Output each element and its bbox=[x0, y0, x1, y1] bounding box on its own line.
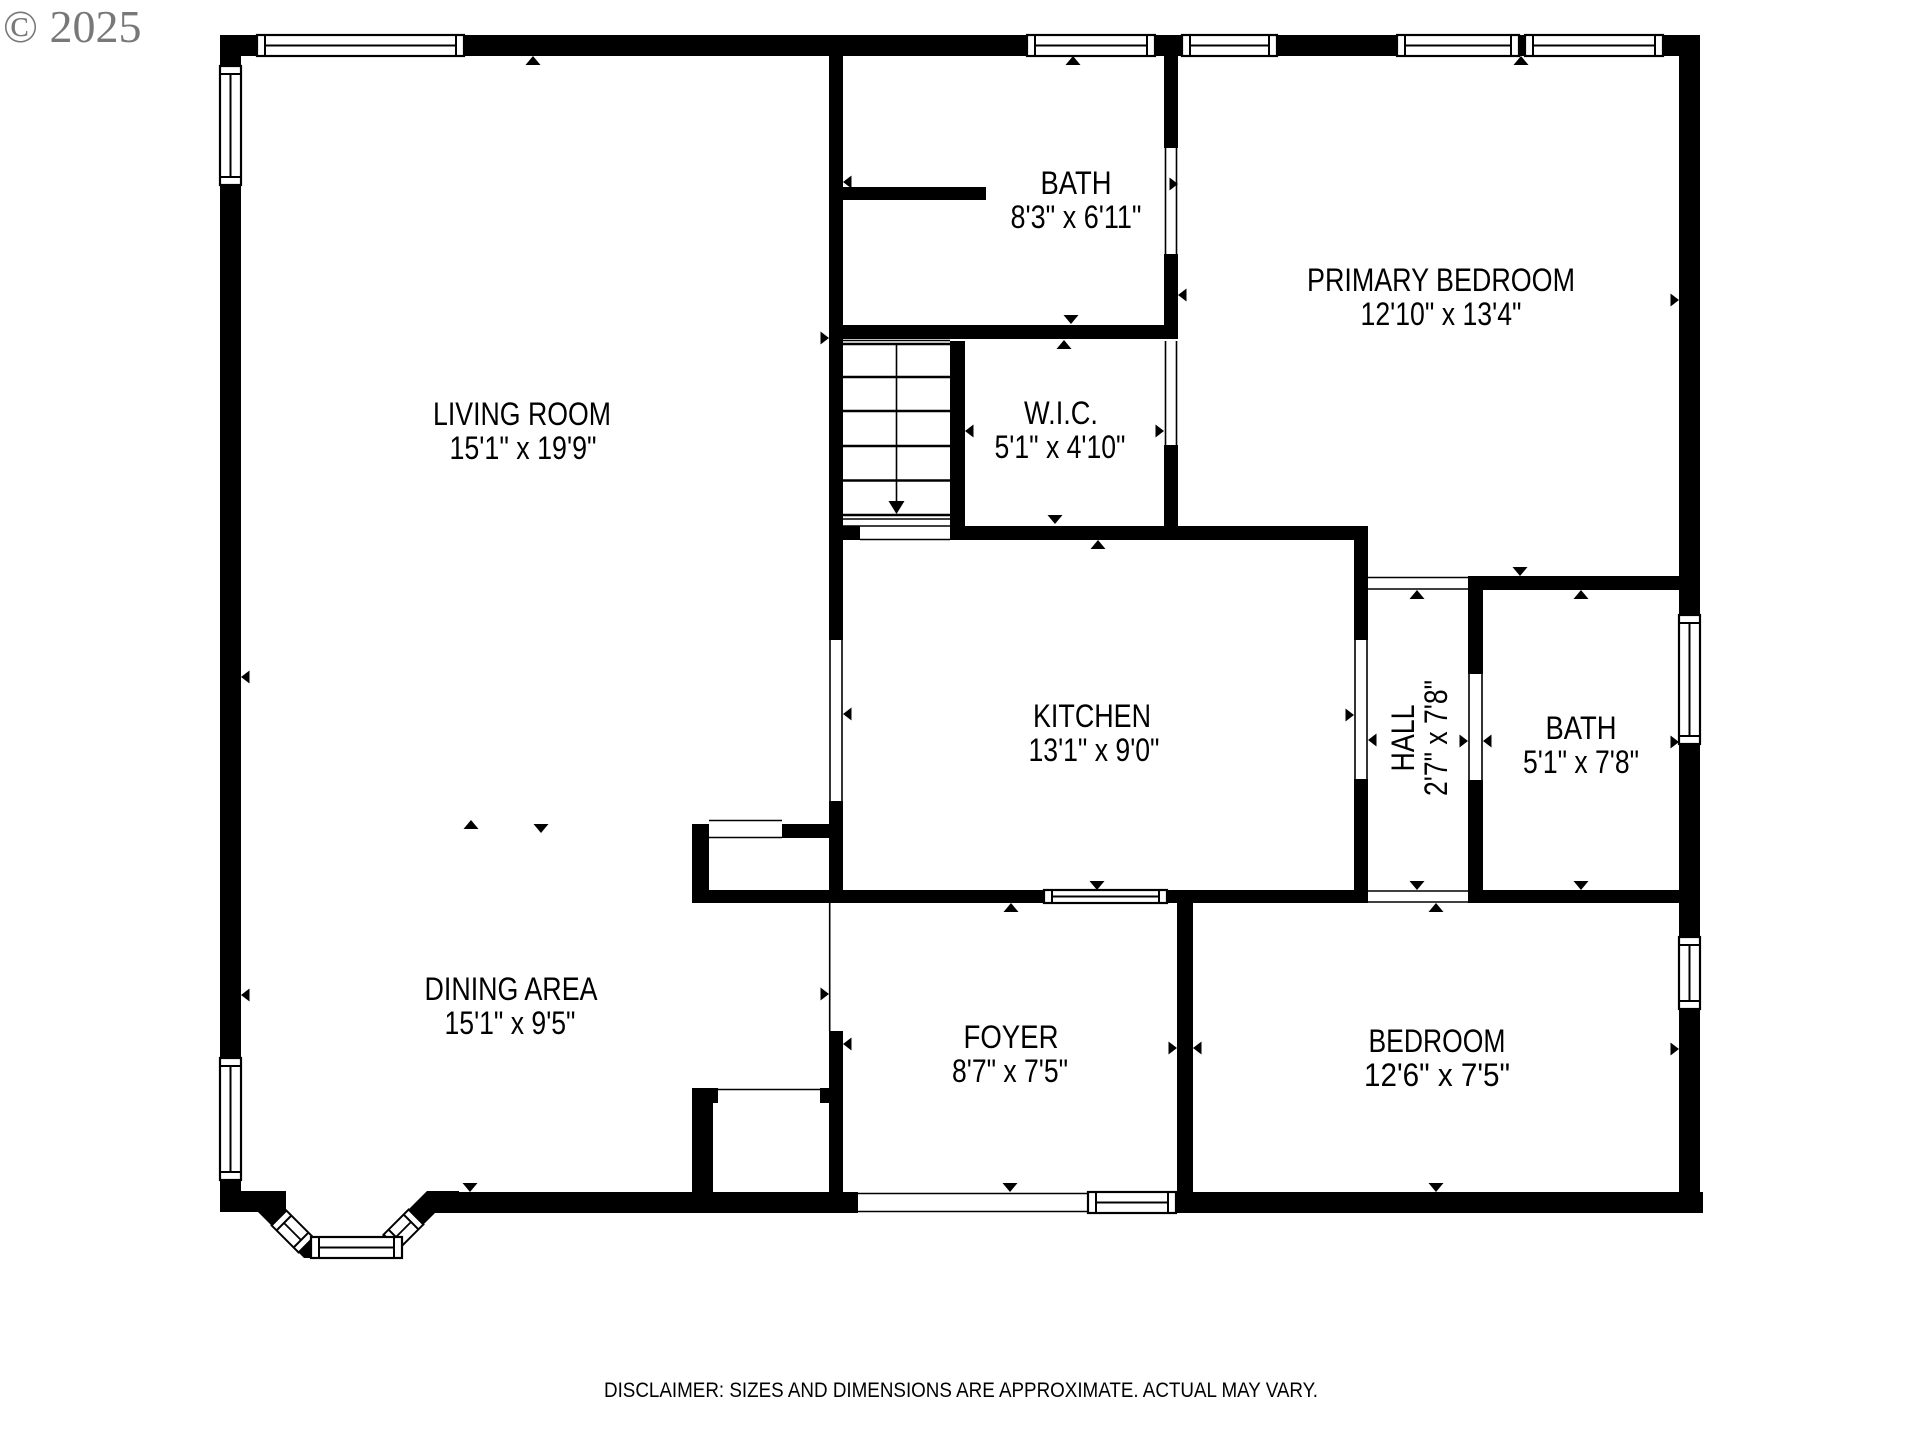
svg-text:FOYER: FOYER bbox=[964, 1019, 1059, 1055]
svg-text:5'1" x 7'8": 5'1" x 7'8" bbox=[1523, 744, 1639, 780]
svg-text:8'3" x 6'11": 8'3" x 6'11" bbox=[1011, 199, 1142, 235]
svg-text:DISCLAIMER: SIZES AND DIMENSIO: DISCLAIMER: SIZES AND DIMENSIONS ARE APP… bbox=[604, 1379, 1318, 1402]
svg-text:5'1" x 4'10": 5'1" x 4'10" bbox=[995, 429, 1126, 465]
svg-text:© 2025: © 2025 bbox=[3, 1, 141, 52]
svg-text:PRIMARY BEDROOM: PRIMARY BEDROOM bbox=[1307, 262, 1575, 298]
svg-text:DINING AREA: DINING AREA bbox=[425, 971, 598, 1007]
svg-text:HALL: HALL bbox=[1385, 705, 1421, 772]
svg-text:W.I.C.: W.I.C. bbox=[1024, 395, 1098, 431]
svg-text:8'7" x 7'5": 8'7" x 7'5" bbox=[952, 1053, 1068, 1089]
svg-text:BATH: BATH bbox=[1041, 165, 1112, 201]
svg-text:12'6" x 7'5": 12'6" x 7'5" bbox=[1364, 1057, 1510, 1093]
svg-text:BEDROOM: BEDROOM bbox=[1369, 1023, 1506, 1059]
svg-text:2'7" x 7'8": 2'7" x 7'8" bbox=[1418, 680, 1454, 796]
svg-text:13'1" x 9'0": 13'1" x 9'0" bbox=[1029, 732, 1160, 768]
svg-text:15'1" x 9'5": 15'1" x 9'5" bbox=[445, 1005, 576, 1041]
svg-text:BATH: BATH bbox=[1546, 710, 1617, 746]
svg-text:12'10" x 13'4": 12'10" x 13'4" bbox=[1361, 296, 1522, 332]
svg-text:LIVING ROOM: LIVING ROOM bbox=[433, 396, 611, 432]
svg-text:KITCHEN: KITCHEN bbox=[1033, 698, 1151, 734]
svg-text:15'1" x 19'9": 15'1" x 19'9" bbox=[450, 430, 597, 466]
